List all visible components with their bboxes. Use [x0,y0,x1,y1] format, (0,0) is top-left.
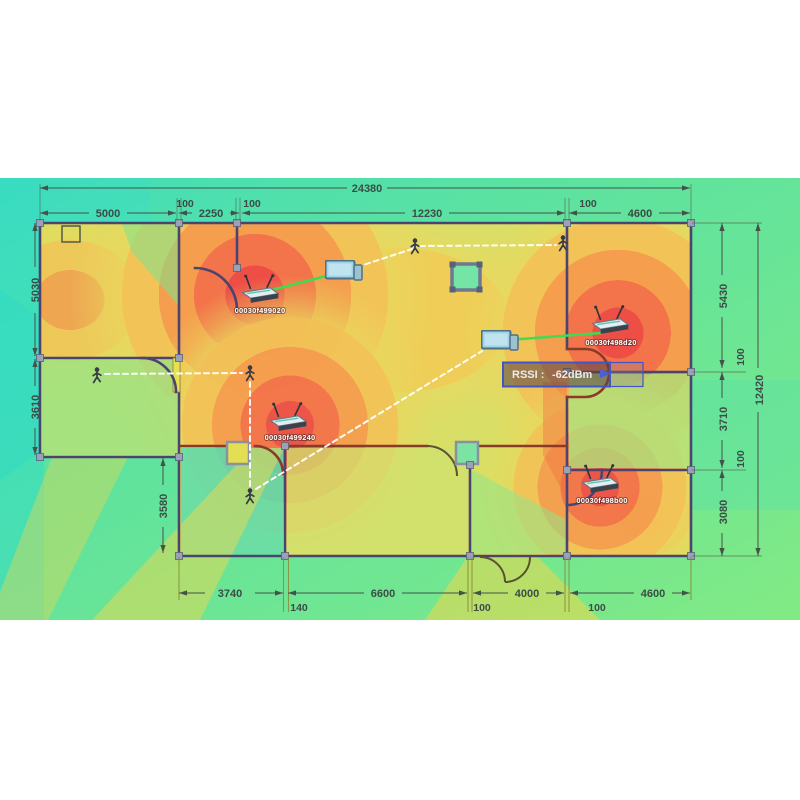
dim-hall: 12230 [412,208,443,220]
floorplan-heatmap-canvas: 24380 5000 2250 12230 4600 100 100 100 5… [0,0,800,800]
dim-wall: 100 [579,198,597,210]
column-icon [450,262,483,293]
ap-mac-label: 00030f498d20 [585,338,636,347]
wifi-heatmap-planner: 24380 5000 2250 12230 4600 100 100 100 5… [0,0,800,800]
dim-bottom-2: 6600 [371,588,395,600]
ap-mac-label: 00030f499240 [265,433,316,442]
rssi-tooltip[interactable]: RSSI : -62dBm [503,363,643,387]
wall-pillar [227,442,249,464]
dim-bottom-1: 3740 [218,588,242,600]
dim-right-lower: 3080 [718,500,730,524]
ap-mac-label: 00030f499020 [235,306,286,315]
wall-pillar [456,442,478,464]
dim-wall: 100 [588,602,606,614]
dim-wall: 100 [735,450,747,468]
dim-wall: 100 [473,602,491,614]
dim-total-width: 24380 [352,183,383,195]
ap-mac-label: 00030f498b00 [576,496,627,505]
dim-bottom-4: 4600 [641,588,665,600]
dim-right-middle: 3710 [718,407,730,431]
dim-stairwell: 2250 [199,208,223,220]
rssi-label: RSSI : [512,369,544,381]
dim-left-upper: 5030 [30,278,42,302]
dim-wall: 140 [290,602,308,614]
dim-total-height: 12420 [754,375,766,406]
heatmap-layer [0,110,800,620]
dim-left-inner: 3580 [158,494,170,518]
dim-left-lower: 3610 [30,395,42,419]
rssi-value: -62dBm [552,369,593,381]
walk-path [105,373,242,374]
dim-room-left: 5000 [96,208,120,220]
dim-right-upper: 5430 [718,284,730,308]
dim-room-right: 4600 [628,208,652,220]
dim-bottom-3: 4000 [515,588,539,600]
door-selection-box [610,363,643,387]
dim-wall: 100 [243,198,261,210]
dim-wall: 100 [176,198,194,210]
dim-wall: 100 [735,348,747,366]
